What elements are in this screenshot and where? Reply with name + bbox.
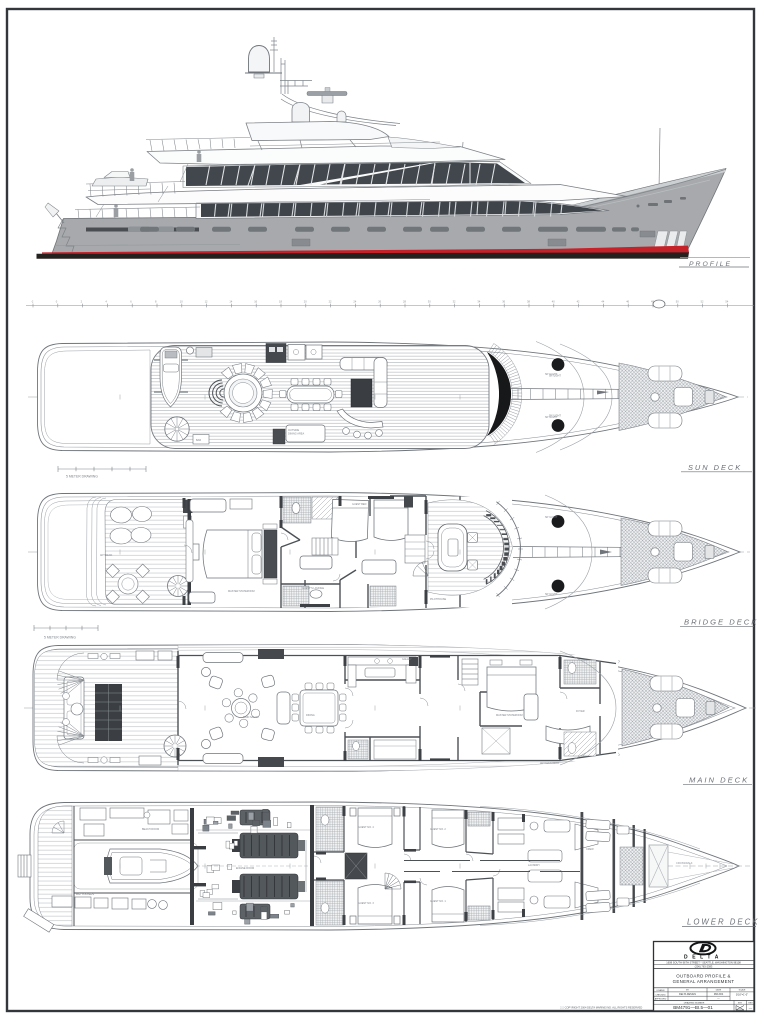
svg-text:DELTA: DELTA: [684, 954, 723, 960]
svg-text:1608 SOUTH 96TH STREET * SEATT: 1608 SOUTH 96TH STREET * SEATTLE, WASHIN…: [666, 961, 741, 965]
svg-text:MAIN SALON: MAIN SALON: [243, 716, 259, 719]
svg-text:LOWER DECK: LOWER DECK: [687, 918, 759, 927]
svg-text:FOYER: FOYER: [576, 710, 585, 713]
svg-text:BRIDGE DECK: BRIDGE DECK: [684, 618, 758, 627]
svg-text:DATE: DATE: [716, 989, 722, 992]
svg-text:SCALE: SCALE: [739, 989, 746, 992]
svg-text:LAUNDRY: LAUNDRY: [528, 864, 540, 867]
svg-text:□ □ COPYRIGHT 2004 DELTA MARI: □ □ COPYRIGHT 2004 DELTA MARINE IND. ALL…: [560, 1006, 642, 1010]
svg-text:REV: REV: [748, 1002, 753, 1004]
svg-text:GUEST NO. 3: GUEST NO. 3: [358, 902, 374, 905]
svg-text:DRAWING NUMBER: DRAWING NUMBER: [684, 1001, 705, 1004]
svg-text:08/13/04: 08/13/04: [714, 993, 724, 996]
svg-text:SKYLIGHT: SKYLIGHT: [545, 593, 558, 596]
svg-text:5 METER DRAWING: 5 METER DRAWING: [44, 636, 76, 640]
svg-text:DELTA DESIGN: DELTA DESIGN: [679, 993, 696, 996]
svg-text:GUEST BED: GUEST BED: [352, 503, 367, 506]
svg-text:DRAWN: DRAWN: [657, 989, 665, 992]
svg-text:GUEST'S LOUNGE: GUEST'S LOUNGE: [302, 587, 324, 590]
svg-text:MASTER STATEROOM: MASTER STATEROOM: [228, 590, 255, 593]
svg-text:CREW: CREW: [586, 848, 594, 851]
svg-text:DINING AREA: DINING AREA: [288, 433, 304, 436]
svg-text:AFT MAIN DECK: AFT MAIN DECK: [540, 762, 560, 765]
svg-text:SKYLIGHT: SKYLIGHT: [545, 373, 558, 376]
svg-text:SKYLIGHT: SKYLIGHT: [545, 416, 558, 419]
svg-text:SHT: SHT: [738, 1002, 743, 1004]
svg-text:3/16"=1'-0": 3/16"=1'-0": [736, 993, 748, 996]
svg-text:ENGINE ROOM: ENGINE ROOM: [236, 867, 254, 870]
svg-text:DINING: DINING: [306, 714, 315, 717]
svg-text:CHECKED: CHECKED: [655, 994, 666, 996]
svg-text:SKYLIGHT: SKYLIGHT: [545, 516, 558, 519]
svg-text:OUTBOARD PROFILE &: OUTBOARD PROFILE &: [676, 974, 730, 979]
svg-text:GUEST NO. 2: GUEST NO. 2: [430, 828, 446, 831]
svg-text:SUN DECK: SUN DECK: [688, 463, 742, 472]
svg-text:APPROVED: APPROVED: [655, 998, 667, 1001]
svg-text:AFT DECK: AFT DECK: [100, 554, 113, 557]
svg-text:(206) 763-2383: (206) 763-2383: [695, 965, 713, 969]
svg-text:MASTER STATEROOM: MASTER STATEROOM: [496, 714, 523, 717]
svg-text:BAR: BAR: [196, 439, 201, 442]
svg-text:BM4791—BI.5—01: BM4791—BI.5—01: [673, 1005, 713, 1010]
svg-text:MAIN DECK: MAIN DECK: [689, 776, 749, 785]
svg-text:GUEST NO. 4: GUEST NO. 4: [358, 826, 374, 829]
svg-text:GUEST NO. 1: GUEST NO. 1: [430, 900, 446, 903]
svg-text:WET LOCKERS: WET LOCKERS: [76, 893, 94, 896]
svg-text:5 METER DRAWING: 5 METER DRAWING: [66, 475, 98, 479]
svg-text:BEACH ROOM: BEACH ROOM: [142, 828, 159, 831]
svg-text:GALLEY: GALLEY: [402, 658, 412, 661]
svg-text:GENERAL ARRANGEMENT: GENERAL ARRANGEMENT: [673, 979, 735, 984]
svg-text:PILOTHOUSE: PILOTHOUSE: [430, 598, 446, 601]
